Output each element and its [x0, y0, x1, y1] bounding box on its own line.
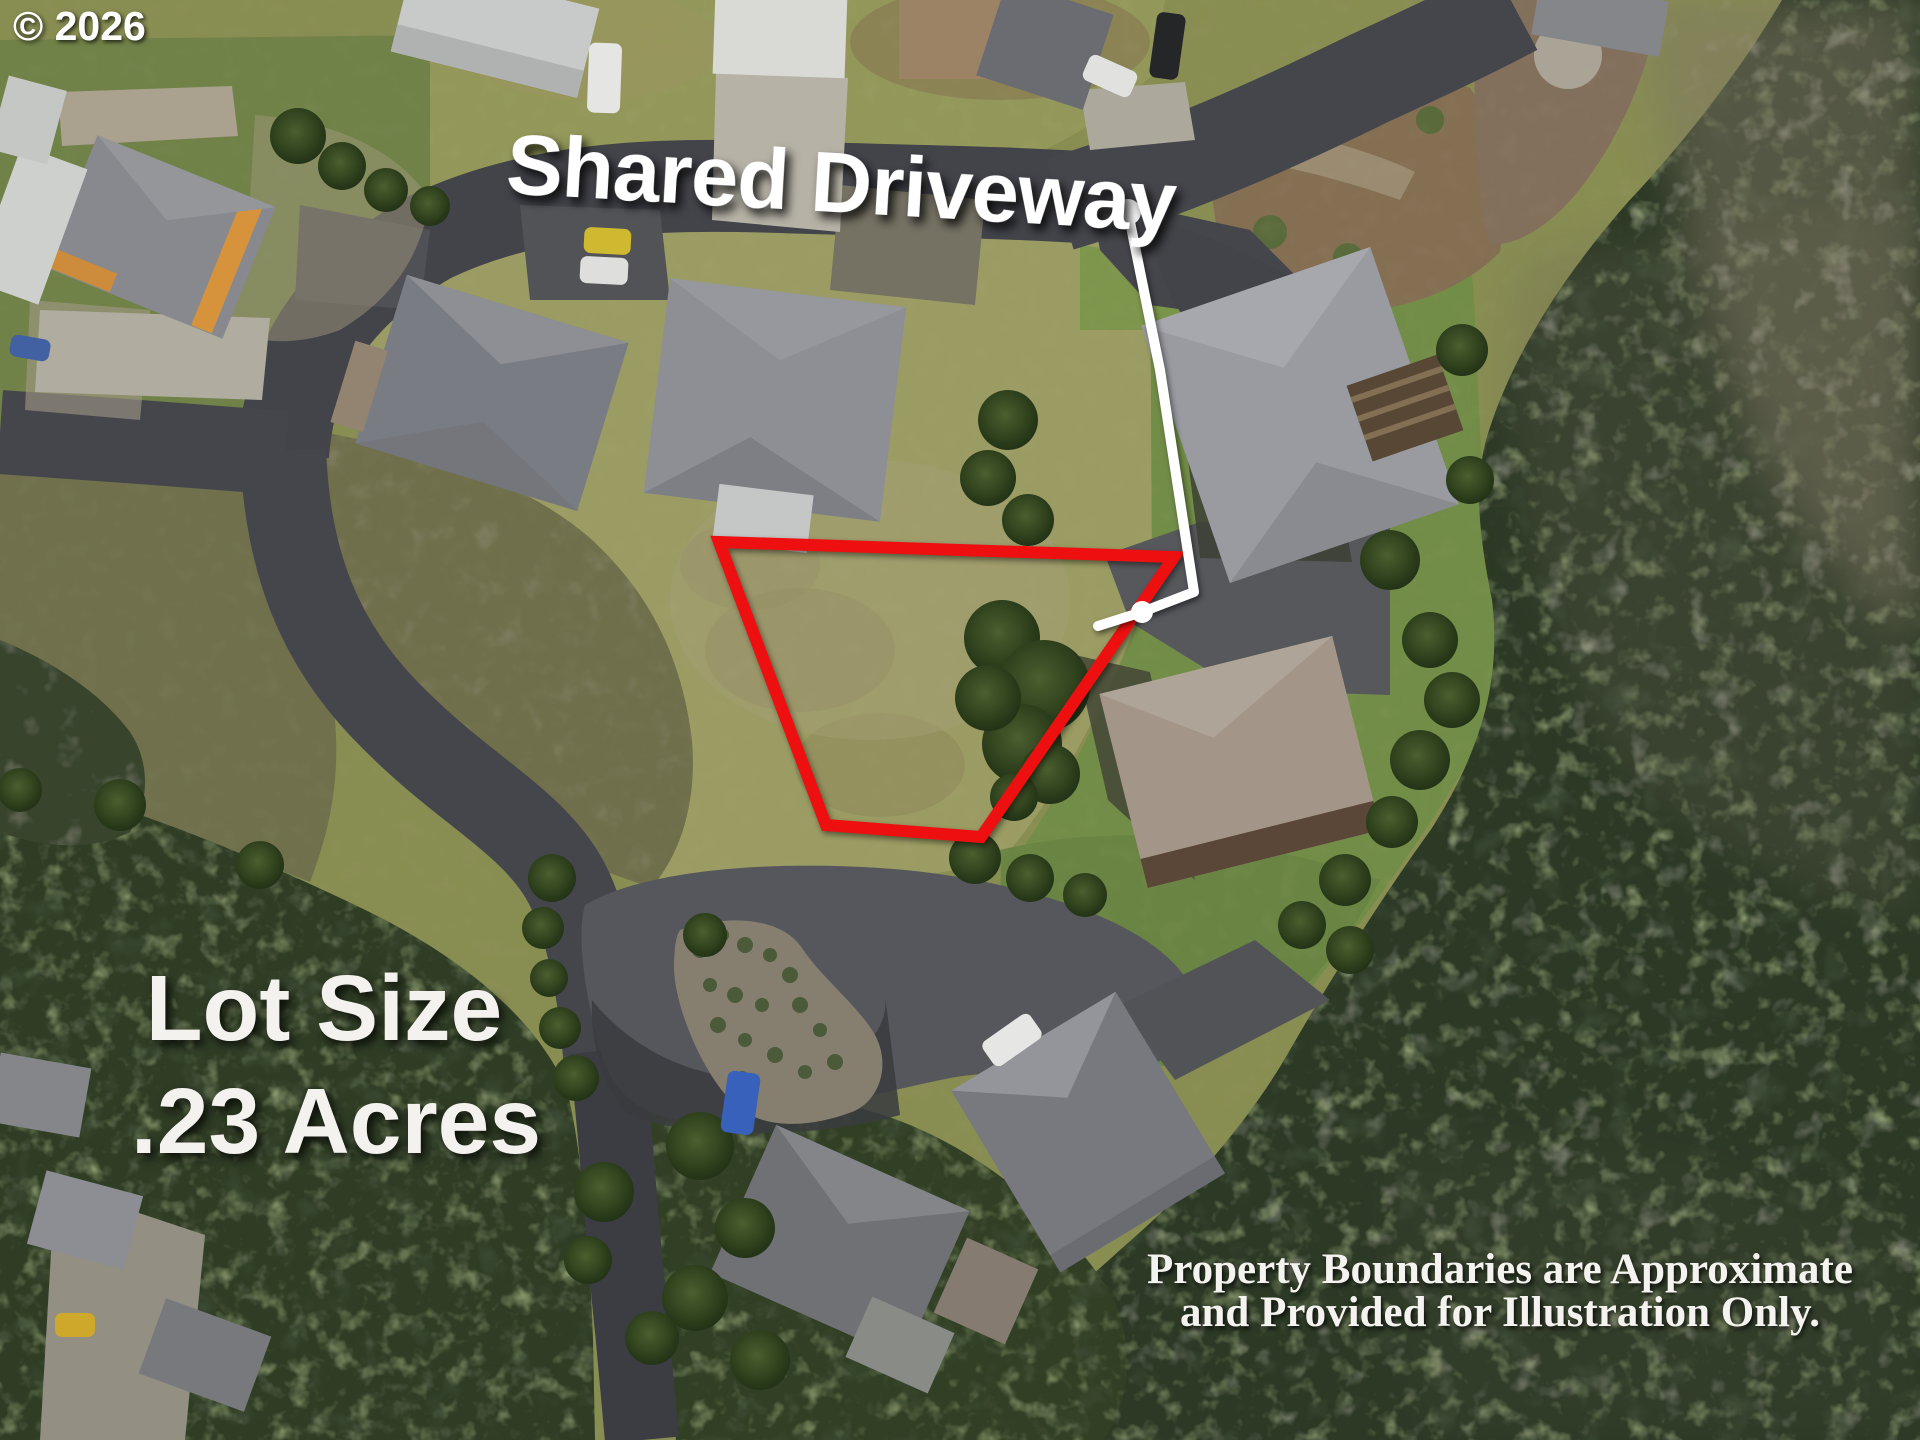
svg-text:Lot Size: Lot Size — [146, 956, 503, 1060]
svg-text:and Provided for Illustration: and Provided for Illustration Only. — [1180, 1289, 1820, 1336]
svg-text:© 2026: © 2026 — [13, 3, 146, 49]
svg-text:.23 Acres: .23 Acres — [131, 1069, 541, 1173]
svg-text:Property Boundaries are Approx: Property Boundaries are Approximate — [1147, 1246, 1853, 1293]
